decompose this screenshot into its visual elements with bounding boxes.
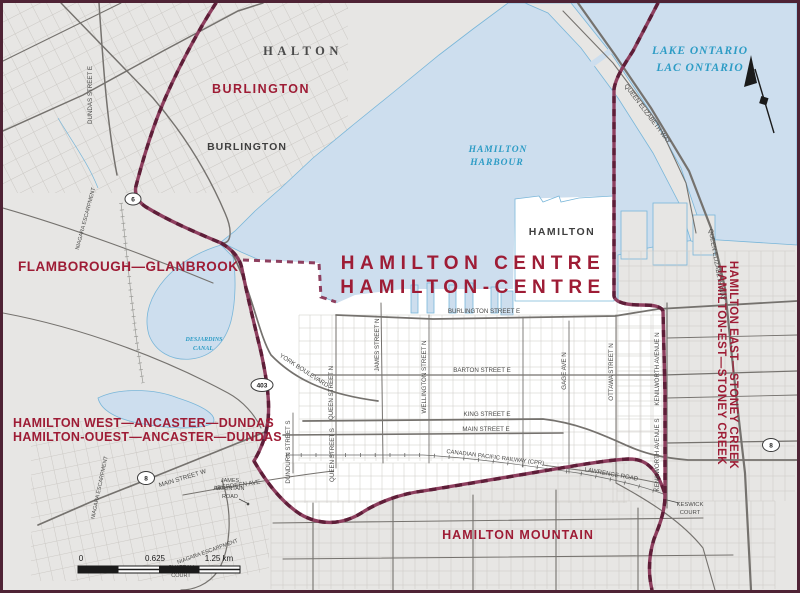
label-gage-n: GAGE AVE N <box>561 352 568 389</box>
label-district-burlington: BURLINGTON <box>212 82 310 96</box>
svg-text:403: 403 <box>257 383 268 390</box>
map-frame: 6 403 8 8 HALTON BURLINGTON BURLINGTON H… <box>0 0 800 593</box>
label-hamilton-mountain: HAMILTON MOUNTAIN <box>442 528 594 542</box>
scale-mid: 0.625 <box>145 554 166 563</box>
label-queen-n: QUEEN STREET N <box>328 366 335 420</box>
label-hamilton-west-fr: HAMILTON-OUEST—ANCASTER—DUNDAS <box>13 430 282 444</box>
label-hamilton-city: HAMILTON <box>529 226 595 238</box>
svg-text:8: 8 <box>144 476 148 483</box>
label-queen-s: QUEEN STREET S <box>329 428 336 482</box>
label-dundas-e: DUNDAS STREET E <box>87 66 94 124</box>
label-barton: BARTON STREET E <box>453 367 510 374</box>
label-wellington-n: WELLINGTON STREET N <box>421 340 428 413</box>
label-dundurn-s: DUNDURN STREET S <box>285 420 292 483</box>
label-keswick-2: COURT <box>680 510 701 516</box>
label-ottawa-n: OTTAWA STREET N <box>608 343 615 400</box>
scale-end: 1.25 km <box>205 554 234 563</box>
label-harbour-l2: HARBOUR <box>469 158 523 168</box>
label-james-mtn-1: JAMES <box>221 478 240 484</box>
label-burlington-st: BURLINGTON STREET E <box>448 308 520 315</box>
label-hamilton-west-en: HAMILTON WEST—ANCASTER—DUNDAS <box>13 416 274 430</box>
label-main-e: MAIN STREET E <box>462 426 509 433</box>
label-lake-ontario-en: LAKE ONTARIO <box>651 45 748 57</box>
label-harbour-l1: HAMILTON <box>468 145 528 155</box>
hwy8-shield-east: 8 <box>763 439 780 452</box>
label-halton: HALTON <box>263 44 343 58</box>
label-kenilworth-s: KENILWORTH AVENUE S <box>654 419 661 492</box>
label-lake-ontario-fr: LAC ONTARIO <box>655 62 743 74</box>
label-james-mtn-2: MOUNTAIN <box>216 486 245 492</box>
label-burlington-city: BURLINGTON <box>207 141 287 153</box>
label-kenilworth-n: KENILWORTH AVENUE N <box>654 332 661 405</box>
svg-text:6: 6 <box>131 197 135 204</box>
label-title-en: HAMILTON CENTRE <box>341 253 605 274</box>
svg-text:HAMILTON EAST—STONEY CREEK: HAMILTON EAST—STONEY CREEK <box>727 261 739 470</box>
label-james-mtn-3: ROAD <box>222 494 238 500</box>
label-desjardins-l2: CANAL <box>193 346 213 352</box>
label-title-fr: HAMILTON-CENTRE <box>340 277 605 298</box>
hwy403-shield: 403 <box>251 379 273 392</box>
label-desjardins-l1: DESJARDINS <box>184 337 223 343</box>
label-chateau-2: COURT <box>171 573 191 579</box>
scale-zero: 0 <box>79 554 84 563</box>
hwy8-shield-west: 8 <box>138 472 155 485</box>
label-king: KING STREET E <box>464 411 511 418</box>
map-canvas: 6 403 8 8 HALTON BURLINGTON BURLINGTON H… <box>3 3 797 590</box>
label-keswick-1: KESWICK <box>677 502 704 508</box>
svg-text:8: 8 <box>769 443 773 450</box>
label-flamborough-glanbrook: FLAMBOROUGH—GLANBROOK <box>18 259 238 274</box>
label-james-n: JAMES STREET N <box>374 319 381 372</box>
hwy6-shield: 6 <box>125 193 141 205</box>
